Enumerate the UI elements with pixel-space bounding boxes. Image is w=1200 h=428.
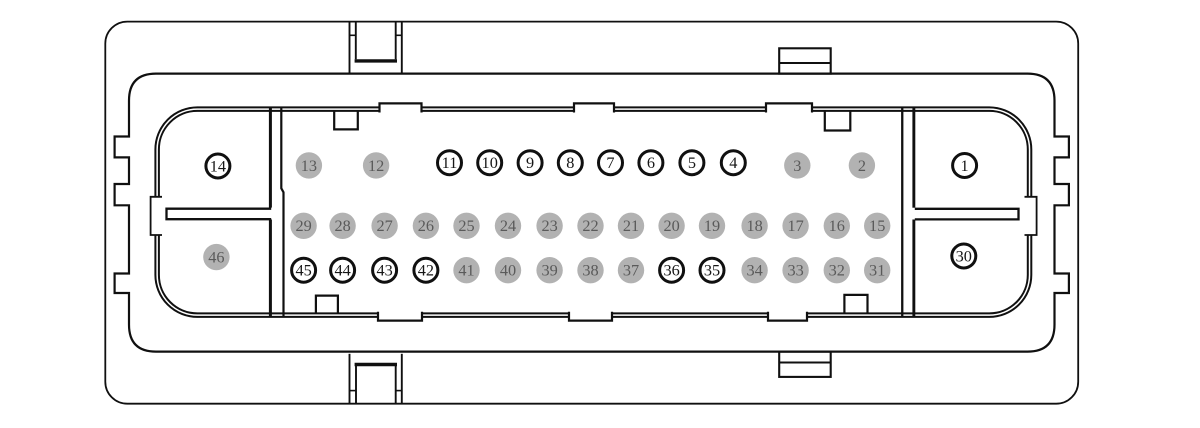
- svg-text:28: 28: [334, 216, 350, 235]
- svg-text:44: 44: [334, 261, 350, 280]
- svg-text:41: 41: [458, 261, 474, 280]
- svg-text:20: 20: [663, 216, 679, 235]
- svg-text:10: 10: [482, 153, 498, 172]
- svg-text:34: 34: [746, 261, 762, 280]
- svg-text:40: 40: [500, 261, 516, 280]
- svg-text:18: 18: [746, 216, 762, 235]
- svg-text:14: 14: [210, 156, 226, 175]
- svg-text:43: 43: [376, 261, 392, 280]
- svg-text:31: 31: [869, 261, 885, 280]
- svg-text:29: 29: [295, 216, 311, 235]
- svg-text:45: 45: [295, 261, 311, 280]
- svg-text:26: 26: [418, 216, 434, 235]
- svg-text:17: 17: [787, 216, 803, 235]
- svg-text:7: 7: [606, 153, 614, 172]
- svg-text:2: 2: [858, 156, 866, 175]
- svg-text:13: 13: [301, 156, 317, 175]
- svg-text:24: 24: [500, 216, 516, 235]
- svg-text:36: 36: [663, 261, 679, 280]
- svg-text:1: 1: [961, 156, 969, 175]
- svg-text:30: 30: [956, 246, 972, 265]
- svg-text:27: 27: [376, 216, 392, 235]
- svg-text:3: 3: [793, 156, 801, 175]
- svg-text:32: 32: [829, 261, 845, 280]
- svg-text:4: 4: [729, 153, 737, 172]
- svg-text:8: 8: [566, 153, 574, 172]
- svg-text:23: 23: [541, 216, 557, 235]
- svg-text:9: 9: [526, 153, 534, 172]
- svg-text:11: 11: [442, 153, 458, 172]
- svg-text:12: 12: [368, 156, 384, 175]
- svg-text:37: 37: [623, 261, 639, 280]
- svg-text:25: 25: [458, 216, 474, 235]
- svg-text:33: 33: [787, 261, 803, 280]
- svg-text:21: 21: [623, 216, 639, 235]
- svg-text:6: 6: [647, 153, 655, 172]
- svg-text:22: 22: [582, 216, 598, 235]
- svg-text:19: 19: [704, 216, 720, 235]
- svg-text:39: 39: [541, 261, 557, 280]
- svg-text:5: 5: [688, 153, 696, 172]
- svg-text:15: 15: [869, 216, 885, 235]
- svg-text:16: 16: [829, 216, 845, 235]
- svg-text:46: 46: [208, 248, 224, 267]
- svg-text:35: 35: [704, 261, 720, 280]
- svg-text:42: 42: [418, 261, 434, 280]
- svg-text:38: 38: [582, 261, 598, 280]
